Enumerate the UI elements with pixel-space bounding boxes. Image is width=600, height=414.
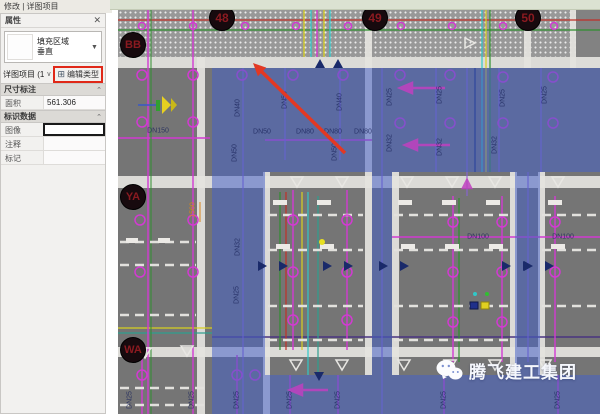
edit-type-button-highlight: ⊞ 编辑类型 [53,66,103,83]
type-selector[interactable]: 填充区域 垂直 ▼ [4,31,102,63]
image-label: 图像 [1,123,43,136]
chevron-down-icon[interactable]: ▼ [91,44,101,51]
section-pin-icon[interactable]: ⌃ [96,113,102,121]
selection-chevron-icon[interactable]: ∨ [46,70,51,78]
area-label: 面积 [1,96,43,109]
close-icon[interactable]: ✕ [93,15,101,26]
panel-title: 属性 [5,15,21,26]
modify-context-bar: 修改 | 详图项目 [0,0,112,13]
mark-label: 标记 [1,151,43,164]
section-pin-icon[interactable]: ⌃ [96,86,102,94]
section-identity-title: 标识数据 [4,111,36,122]
type-preview-thumbnail [7,34,33,60]
property-row-mark: 标记 [1,151,105,165]
property-row-area: 面积 561.306 [1,96,105,110]
property-row-comments: 注释 [1,137,105,151]
properties-panel: 属性 ✕ 填充区域 垂直 ▼ 详图项目 (1) ∨ ⊞ 编辑类型 尺寸标注 ⌃ … [0,13,106,414]
type-family-label: 填充区域 [37,37,91,47]
image-value-field[interactable] [43,123,105,136]
red-annotation-arrow [118,10,600,414]
selection-filter-label[interactable]: 详图项目 (1) [3,69,44,80]
app-window: 修改 | 详图项目 属性 ✕ 填充区域 垂直 ▼ 详图项目 (1) ∨ ⊞ 编辑… [0,0,600,414]
modify-bar-label: 修改 | 详图项目 [4,2,59,11]
property-row-image: 图像 [1,123,105,137]
view-top-strip [110,0,600,10]
comments-value-field[interactable] [43,137,105,150]
edit-type-button[interactable]: 编辑类型 [67,69,99,80]
edit-type-icon: ⊞ [57,70,65,78]
type-name-label: 垂直 [37,47,91,57]
comments-label: 注释 [1,137,43,150]
section-dimensions-title: 尺寸标注 [4,84,36,95]
drawing-area[interactable]: 484950BBYAWADN150DN40DN50DN50DN50DN80DN8… [118,10,600,414]
mark-value-field[interactable] [43,151,105,164]
area-value[interactable]: 561.306 [43,96,105,109]
